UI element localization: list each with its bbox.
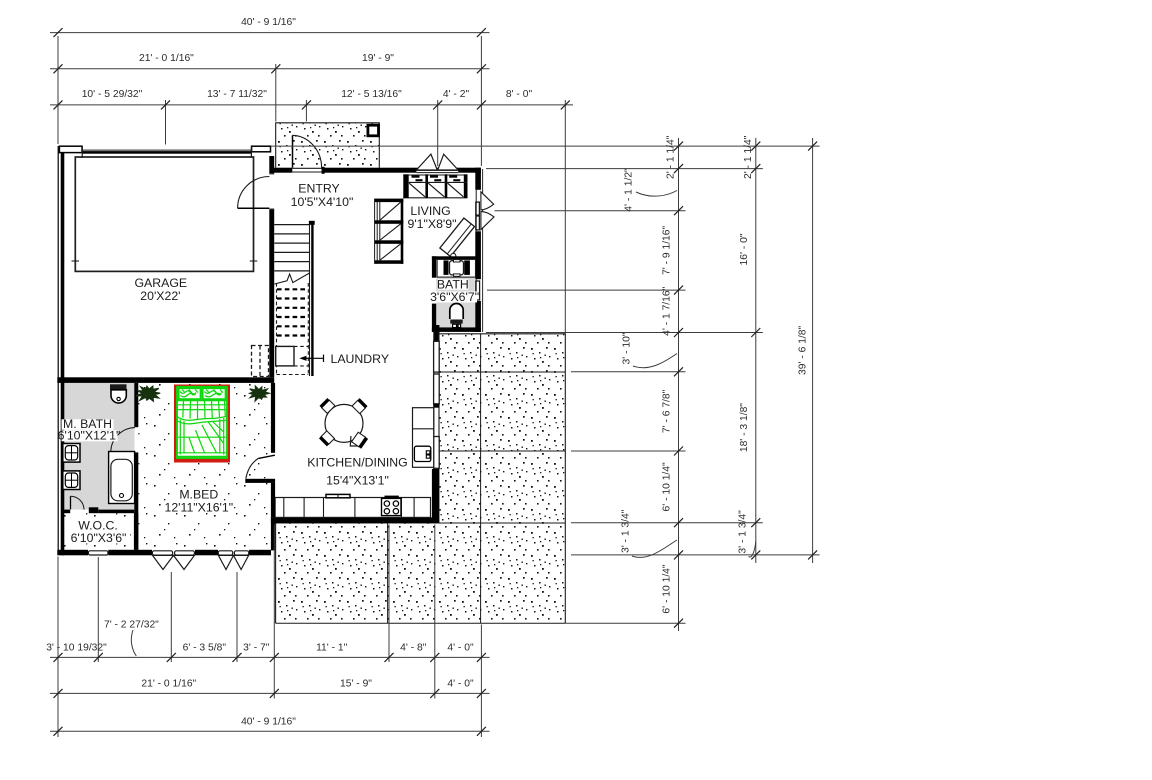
svg-text:15'4"X13'1": 15'4"X13'1" — [326, 473, 389, 487]
svg-text:4' - 0": 4' - 0" — [447, 679, 474, 690]
svg-text:40' - 9 1/16": 40' - 9 1/16" — [241, 17, 296, 28]
svg-text:6' - 10 1/4": 6' - 10 1/4" — [662, 462, 673, 511]
svg-text:6'10"X12'1": 6'10"X12'1" — [58, 428, 121, 442]
svg-text:21' - 0 1/16": 21' - 0 1/16" — [141, 679, 196, 690]
svg-text:KITCHEN/DINING: KITCHEN/DINING — [307, 455, 407, 469]
svg-text:21' - 0 1/16": 21' - 0 1/16" — [139, 53, 194, 64]
svg-text:7' - 2 27/32": 7' - 2 27/32" — [104, 620, 159, 631]
svg-text:4' - 1 7/16": 4' - 1 7/16" — [662, 286, 673, 335]
svg-text:11' - 1": 11' - 1" — [316, 643, 348, 654]
svg-text:4' - 2": 4' - 2" — [443, 89, 470, 100]
svg-text:ENTRY: ENTRY — [298, 181, 339, 195]
svg-text:3'6"X6'7": 3'6"X6'7" — [430, 290, 479, 304]
svg-text:19' - 9": 19' - 9" — [362, 53, 394, 64]
svg-text:39' - 6 1/8": 39' - 6 1/8" — [798, 325, 809, 374]
svg-text:6' - 3 5/8": 6' - 3 5/8" — [183, 643, 227, 654]
svg-text:12' - 5 13/16": 12' - 5 13/16" — [341, 89, 402, 100]
svg-text:6' - 10 1/4": 6' - 10 1/4" — [662, 564, 673, 613]
svg-text:3' - 7": 3' - 7" — [243, 643, 270, 654]
svg-text:18' - 3 1/8": 18' - 3 1/8" — [739, 403, 750, 452]
svg-text:40' - 9 1/16": 40' - 9 1/16" — [241, 717, 296, 728]
svg-text:10' - 5 29/32": 10' - 5 29/32" — [82, 89, 143, 100]
svg-text:10'5"X4'10": 10'5"X4'10" — [291, 195, 354, 209]
svg-text:7' - 6 7/8": 7' - 6 7/8" — [662, 389, 673, 433]
svg-text:4' - 8": 4' - 8" — [400, 643, 427, 654]
svg-text:2' - 1 1/4": 2' - 1 1/4" — [743, 135, 754, 179]
svg-text:3' - 10": 3' - 10" — [622, 332, 633, 364]
svg-text:9'1"X8'9": 9'1"X8'9" — [408, 217, 457, 231]
svg-text:3' - 1 3/4": 3' - 1 3/4" — [738, 510, 749, 554]
svg-text:4' - 1 1/2": 4' - 1 1/2" — [624, 168, 635, 212]
svg-text:LAUNDRY: LAUNDRY — [331, 352, 390, 366]
svg-text:6'10"X3'6": 6'10"X3'6" — [71, 531, 127, 545]
svg-text:3' - 1 3/4": 3' - 1 3/4" — [621, 509, 632, 553]
svg-text:2' - 1 1/4": 2' - 1 1/4" — [666, 135, 677, 179]
svg-text:3' - 10 19/32": 3' - 10 19/32" — [46, 643, 107, 654]
svg-text:13' - 7 11/32": 13' - 7 11/32" — [207, 89, 267, 100]
svg-text:4' - 0": 4' - 0" — [447, 643, 474, 654]
svg-text:7' - 9 1/16": 7' - 9 1/16" — [662, 225, 673, 274]
svg-text:16' - 0": 16' - 0" — [739, 233, 750, 265]
svg-text:15' - 9": 15' - 9" — [340, 679, 372, 690]
svg-text:20'X22': 20'X22' — [140, 289, 180, 303]
svg-text:8' - 0": 8' - 0" — [506, 89, 533, 100]
svg-text:12'11"X16'1": 12'11"X16'1" — [165, 501, 234, 515]
svg-text:LIVING: LIVING — [410, 204, 450, 218]
svg-text:GARAGE: GARAGE — [134, 276, 187, 290]
